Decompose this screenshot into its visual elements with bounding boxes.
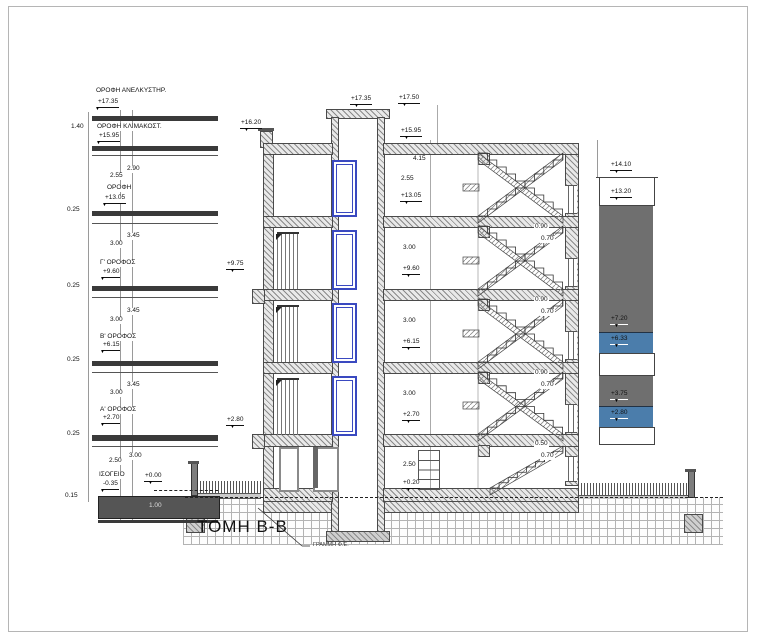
level-marker-icon: ▼ xyxy=(406,488,411,493)
elevation-label: +7.20 xyxy=(610,316,628,325)
fence-post-left xyxy=(191,463,198,496)
curtain-floor2 xyxy=(277,305,299,362)
level-label: Γ' ΟΡΟΦΟΣ xyxy=(99,260,136,267)
slab-bar xyxy=(92,361,218,366)
level-marker-icon: ▼ xyxy=(404,136,409,141)
elevation-label: +0.20 xyxy=(402,480,420,489)
ceiling-line xyxy=(92,223,218,224)
slab-bar xyxy=(92,146,218,151)
ceiling-line xyxy=(92,446,218,447)
level-marker-icon: ▼ xyxy=(614,418,619,423)
floor-slab xyxy=(263,434,333,447)
dim-label: 1.40 xyxy=(70,124,85,131)
window-floor2 xyxy=(332,303,357,363)
dim-label: 3.00 xyxy=(402,245,417,252)
dim-label: 3.00 xyxy=(109,317,124,324)
pavement-left xyxy=(197,481,261,493)
elevation-label: +3.75 xyxy=(610,391,628,400)
roof-slab xyxy=(263,143,333,155)
dim-label: 2.55 xyxy=(400,176,415,183)
level-marker-icon: ▼ xyxy=(95,107,100,112)
dim-label: 0.25 xyxy=(66,207,81,214)
dim-label: 4.15 xyxy=(412,156,427,163)
level-label: ΙΣΟΓΕΙΟ xyxy=(98,472,126,479)
dim-label: 3.00 xyxy=(402,391,417,398)
dim-label: 2.90 xyxy=(126,166,141,173)
shaft-wall-right xyxy=(377,117,385,538)
ceiling-line xyxy=(92,155,218,156)
level-marker-icon: ▼ xyxy=(100,350,105,355)
dim-label: 0.70 xyxy=(540,453,555,460)
dim-label: 3.00 xyxy=(402,318,417,325)
dim-label: 0.70 xyxy=(540,382,555,389)
ground-line-dashed xyxy=(185,497,723,498)
elevation-label: +13.05 xyxy=(104,195,126,204)
floor-slab xyxy=(263,216,333,228)
level-marker-icon: ▼ xyxy=(614,170,619,175)
level-marker-icon: ▼ xyxy=(406,420,411,425)
level-marker-icon: ▼ xyxy=(244,128,249,133)
level-marker-icon: ▼ xyxy=(100,489,105,494)
window-floor3 xyxy=(332,230,357,290)
dim-line-top xyxy=(437,105,438,143)
balcony-ledge-lower xyxy=(252,434,265,449)
ground-door xyxy=(279,447,299,492)
slab-bar xyxy=(92,211,218,216)
dim-label: 2.50 xyxy=(402,462,417,469)
dim-label: 0.25 xyxy=(66,431,81,438)
slab-bar xyxy=(92,116,218,121)
level-label: ΟΡΟΦΗ ΚΛΙΜΑΚΟΣΤ. xyxy=(96,124,163,131)
dim-label: 3.45 xyxy=(126,308,141,315)
ceiling-line xyxy=(92,297,218,298)
curtain-floor1 xyxy=(277,378,299,435)
elevation-label-zero: +0.00 xyxy=(144,473,162,482)
dim-label: 3.00 xyxy=(109,241,124,248)
level-label: ΟΡΟΦΗ xyxy=(106,185,132,192)
level-marker-icon: ▼ xyxy=(230,425,235,430)
elevation-label: +2.80 xyxy=(610,410,628,419)
slab-bar xyxy=(92,435,218,441)
elevation-label: +2.80 xyxy=(226,417,244,426)
elevation-label: +17.35 xyxy=(97,99,119,108)
neighbor-top-line xyxy=(596,177,658,178)
neighbor-gap-strip xyxy=(599,353,655,376)
dim-label: 3.00 xyxy=(109,390,124,397)
dim-label: 0.25 xyxy=(66,283,81,290)
footing-right xyxy=(684,514,703,533)
boundary-line xyxy=(597,140,598,178)
ground-line-note: ΓΡΑΜΜΗ Φ.Ε. xyxy=(312,543,350,549)
level-marker-icon: ▼ xyxy=(402,103,407,108)
level-marker-icon: ▼ xyxy=(230,269,235,274)
neighbor-base-strip xyxy=(599,427,655,445)
level-marker-icon: ▼ xyxy=(614,197,619,202)
curtain-floor3 xyxy=(277,232,299,289)
dim-label: 0.50 xyxy=(534,441,549,448)
dim-label: 0.70 xyxy=(540,309,555,316)
level-marker-icon: ▼ xyxy=(100,423,105,428)
fence-post-right xyxy=(688,471,695,498)
dim-label: 2.50 xyxy=(108,458,123,465)
level-marker-icon: ▼ xyxy=(406,347,411,352)
dim-label: 2.55 xyxy=(109,173,124,180)
level-marker-icon: ▼ xyxy=(406,274,411,279)
level-marker-icon: ▼ xyxy=(404,201,409,206)
zero-level-dash xyxy=(154,490,218,491)
dim-label-foundation: 1.00 xyxy=(148,503,163,510)
level-marker-icon: ▼ xyxy=(100,277,105,282)
window-floor1 xyxy=(332,376,357,436)
ceiling-line xyxy=(92,372,218,373)
dim-label: 3.00 xyxy=(128,453,143,460)
window-top-floor xyxy=(332,160,357,217)
level-marker-icon: ▼ xyxy=(102,203,107,208)
elevation-label: +9.75 xyxy=(226,261,244,270)
balcony-ledge-upper xyxy=(252,289,265,304)
level-marker-icon: ▼ xyxy=(614,324,619,329)
elevation-label: +2.70 xyxy=(402,412,420,421)
elevation-label: +6.15 xyxy=(402,339,420,348)
level-label: Β' ΟΡΟΦΟΣ xyxy=(99,334,137,341)
dim-label: 3.45 xyxy=(126,233,141,240)
dim-label: 0.25 xyxy=(66,357,81,364)
post-cap-left xyxy=(188,461,199,464)
post-cap-right xyxy=(685,469,696,472)
elevation-label: +6.33 xyxy=(610,336,628,345)
dim-label: 3.45 xyxy=(126,382,141,389)
dim-label: 0.15 xyxy=(64,493,79,500)
slab-bar xyxy=(92,286,218,291)
level-marker-icon: ▼ xyxy=(96,141,101,146)
section-drawing: ΟΡΟΦΗ ΑΝΕΛΚΥΣΤΗΡ. +17.35 ▼ 1.40 ΟΡΟΦΗ ΚΛ… xyxy=(0,0,757,640)
elevation-label: +9.60 xyxy=(402,266,420,275)
dim-label: 0.70 xyxy=(540,236,555,243)
dim-line xyxy=(88,112,89,502)
dim-label: 0.90 xyxy=(534,370,549,377)
neighbor-wall-upper xyxy=(599,204,653,332)
dim-label: 0.90 xyxy=(534,224,549,231)
level-label: ΟΡΟΦΗ ΑΝΕΛΚΥΣΤΗΡ. xyxy=(95,88,167,95)
floor-slab xyxy=(263,362,333,374)
stair-flights xyxy=(435,140,580,500)
level-marker-icon: ▼ xyxy=(148,481,153,486)
dim-label: 0.90 xyxy=(534,297,549,304)
level-label: Α' ΟΡΟΦΟΣ xyxy=(99,407,137,414)
door-jamb xyxy=(313,447,318,488)
floor-slab xyxy=(263,289,333,301)
level-marker-icon: ▼ xyxy=(614,344,619,349)
pavement-right xyxy=(578,483,688,495)
level-marker-icon: ▼ xyxy=(354,104,359,109)
section-title: ΤΟΜΗ Β-Β xyxy=(196,518,289,536)
elevation-label: +15.95 xyxy=(98,133,120,142)
level-marker-icon: ▼ xyxy=(614,399,619,404)
